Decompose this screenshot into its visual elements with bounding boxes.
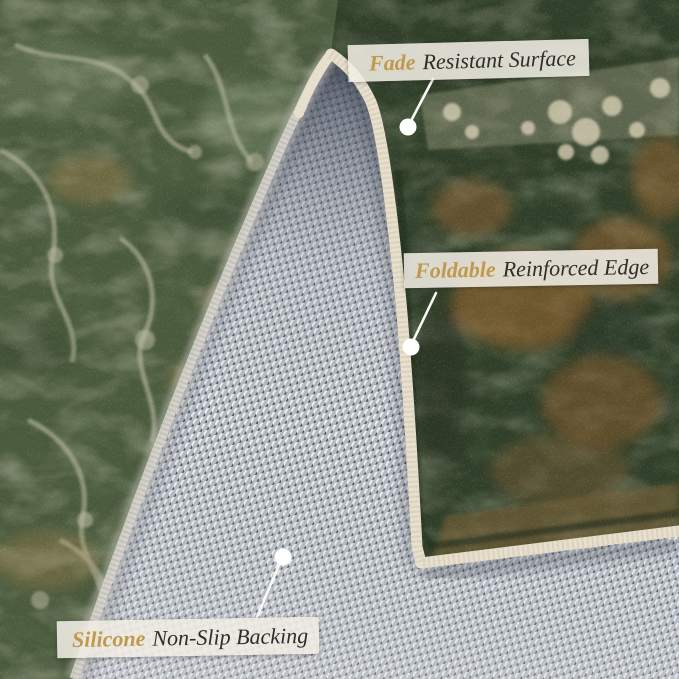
- callout-label-silicone: Silicone Non-Slip Backing: [57, 617, 320, 659]
- callout-label-foldable-text: Reinforced Edge: [503, 255, 650, 280]
- product-photo-rug: Fade Resistant Surface Foldable Reinforc…: [0, 0, 679, 679]
- callout-label-fade-text: Resistant Surface: [422, 47, 576, 73]
- rug-photo: [0, 0, 679, 679]
- callout-label-silicone-highlight: Silicone: [72, 627, 146, 650]
- callout-label-foldable-highlight: Foldable: [415, 258, 496, 281]
- callout-dot-fade: [400, 119, 417, 136]
- callout-label-fade: Fade Resistant Surface: [348, 39, 590, 82]
- fabric-grain-overlay-dark: [0, 0, 679, 679]
- callout-label-foldable: Foldable Reinforced Edge: [404, 249, 659, 288]
- callout-label-fade-highlight: Fade: [369, 51, 416, 74]
- callout-label-silicone-text: Non-Slip Backing: [152, 624, 308, 649]
- callout-dot-silicone: [275, 549, 292, 566]
- callout-dot-foldable: [403, 339, 420, 356]
